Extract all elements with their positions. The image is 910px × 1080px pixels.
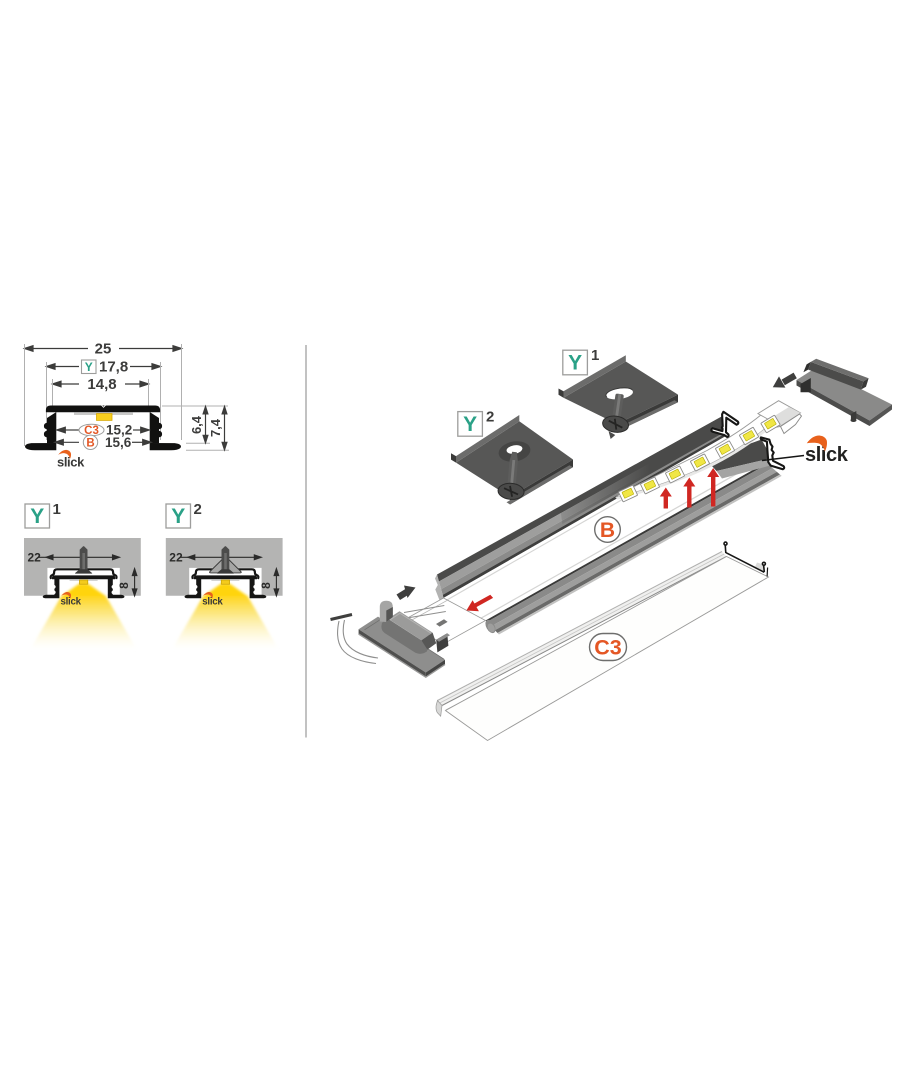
svg-text:1: 1 [53, 501, 61, 518]
svg-text:2: 2 [194, 501, 202, 518]
svg-text:C3: C3 [594, 636, 622, 660]
svg-text:Y: Y [85, 360, 93, 374]
svg-text:slick: slick [57, 455, 85, 470]
svg-text:14,8: 14,8 [87, 376, 116, 393]
svg-text:B: B [600, 519, 615, 542]
svg-text:17,8: 17,8 [99, 359, 128, 376]
svg-text:8: 8 [259, 582, 273, 589]
svg-text:15,6: 15,6 [105, 435, 132, 450]
svg-text:1: 1 [591, 347, 599, 364]
svg-text:B: B [86, 438, 94, 450]
svg-text:25: 25 [95, 341, 112, 358]
svg-text:slick: slick [805, 444, 849, 466]
svg-text:Y: Y [171, 505, 185, 528]
svg-text:8: 8 [117, 582, 131, 589]
svg-text:Y: Y [463, 413, 477, 436]
svg-text:6,4: 6,4 [189, 415, 204, 434]
svg-text:Y: Y [568, 352, 582, 375]
svg-text:2: 2 [486, 408, 494, 425]
svg-text:7,4: 7,4 [208, 418, 223, 437]
svg-text:Y: Y [30, 505, 44, 528]
